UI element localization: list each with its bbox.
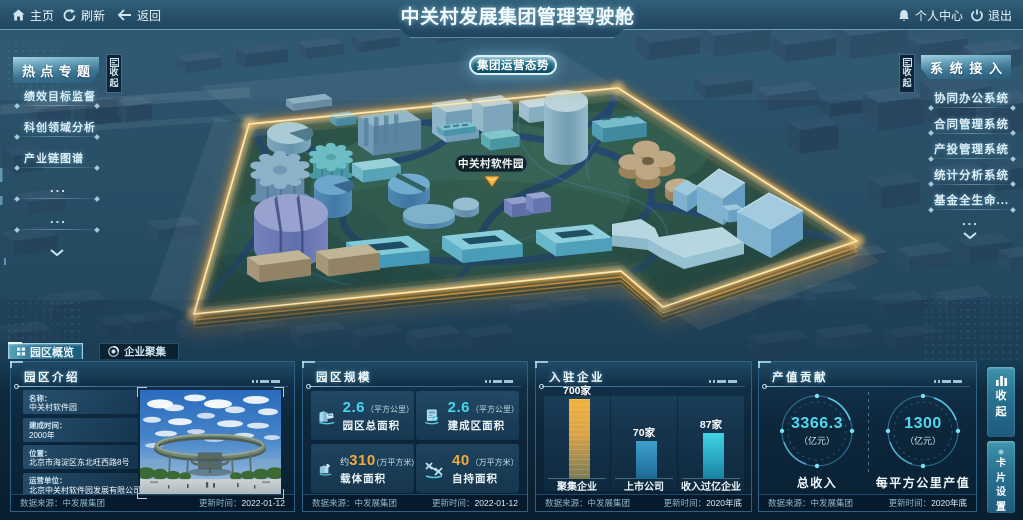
svg-text:中关村软件园: 中关村软件园 xyxy=(458,157,524,170)
